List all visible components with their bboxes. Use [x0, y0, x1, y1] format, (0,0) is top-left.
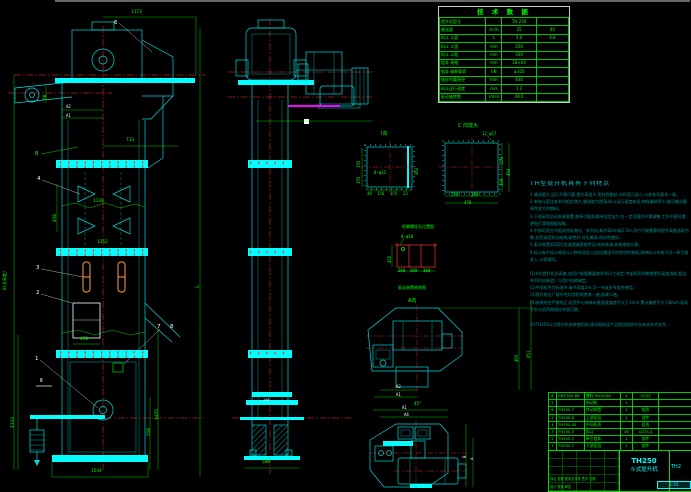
- anchor-200: 200: [398, 269, 405, 273]
- section-c-250: 250: [500, 157, 504, 164]
- balloon-2[interactable]: 2: [36, 291, 40, 297]
- section-i-40: 40: [367, 192, 372, 196]
- boot-view-a4: A4: [404, 413, 409, 417]
- dim-1333: 1333: [12, 417, 17, 428]
- tech-param-value-1: 48.5: [502, 93, 536, 101]
- cad-sheet: { "sheet": {"background": "#000000", "fr…: [0, 0, 691, 491]
- part-note: [659, 421, 691, 428]
- part-code: TH250.6: [557, 414, 585, 421]
- machine-name: 斗式提升机: [619, 468, 669, 474]
- tech-table-row: 输送量 m³/h 25 40: [440, 26, 569, 34]
- tech-param-unit: m/s: [486, 85, 502, 93]
- anchor-holes: 8-φ18: [401, 235, 413, 239]
- tech-param-label: 驱动轴转数: [440, 93, 486, 101]
- part-number: 4: [549, 421, 557, 428]
- balloon-4[interactable]: 4: [37, 177, 41, 183]
- section-i-155a: 155: [357, 161, 361, 168]
- part-name: 传动装置: [585, 407, 621, 414]
- tech-param-value-1: ≥320: [502, 68, 536, 76]
- part-qty: 46: [621, 428, 633, 435]
- part-name: 牵引链条: [585, 436, 621, 443]
- tech-param-label: 输送量: [440, 26, 486, 34]
- section-mark-2: Ⅱ: [40, 379, 43, 385]
- part-material: Q235-A: [633, 428, 659, 435]
- tech-table-row: 链轮节圆直径 mm 630: [440, 76, 569, 84]
- part-name: 电动机: [585, 400, 621, 407]
- title-block: 标记 处数 更改文件号 签字 日期 设计 校核 审定 TH250 斗式提升机 1…: [548, 450, 691, 492]
- parts-list-row: 8 GB5782-86 螺栓 M20×80 4 Q235: [549, 393, 691, 400]
- section-i-155b: 155: [357, 177, 361, 184]
- tech-param-value-1: 25: [502, 26, 536, 34]
- tech-param-value-1: 350: [502, 51, 536, 59]
- remark-line: (1)H为提升机总高度,由用户根据需要按系列尺寸选定,中部机壳节数按提升高度选取…: [530, 270, 690, 284]
- tech-param-value-2: [536, 43, 568, 51]
- anchor-detail-title: 地脚螺栓孔位置图: [402, 225, 434, 229]
- title-block-right: TH2: [669, 451, 691, 491]
- tech-param-value-2: [536, 18, 568, 26]
- tech-table-row: 料斗运行速度 m/s 1.2: [440, 85, 569, 93]
- part-qty: 1: [621, 400, 633, 407]
- tech-param-unit: L: [486, 34, 502, 42]
- part-note: [659, 407, 691, 414]
- section-i-title: Ⅰ向: [381, 132, 387, 137]
- dim-713: 713: [126, 139, 134, 144]
- part-name: 上部区段: [585, 414, 621, 421]
- machine-model: TH250: [619, 458, 669, 465]
- part-material: 部件: [633, 414, 659, 421]
- parts-list-row: 1 TH250.1 下部区段 1 部件: [549, 443, 691, 450]
- tech-param-value-1: TH 250: [502, 18, 536, 26]
- top-view-465: 465: [515, 355, 519, 362]
- tech-table-row: 驱动轴转数 r/min 48.5: [440, 93, 569, 101]
- parts-list-row: 3 TH250.3 料斗 46 Q235-A: [549, 428, 691, 435]
- tech-table-row: 料斗 斗容 L 3.0 4.8: [440, 34, 569, 42]
- part-note: [659, 400, 691, 407]
- tech-table-row: 提升机型号 TH 250: [440, 18, 569, 26]
- dim-boot-500: 500: [262, 461, 270, 466]
- dim-H-label: H(总高度): [3, 271, 7, 290]
- part-note: [659, 436, 691, 443]
- tech-param-label: 料斗运行速度: [440, 85, 486, 93]
- remark-line: (2)中间机壳为标准节,每节高度2m,可一节或多节组合使用。: [530, 284, 690, 291]
- anchor-435: 435: [388, 256, 392, 263]
- part-material: 部件: [633, 436, 659, 443]
- remark-line: (4)安装时应严格找正,机壳中心线每米垂直度偏差不大于1mm,累计偏差不大于8m…: [530, 299, 690, 313]
- dim-door-450: 450: [80, 338, 88, 343]
- feature-notes: TH型提升机具有下列特点 1.输送量大,运行平稳可靠,提升高度大,密封性能好,对…: [530, 181, 690, 391]
- top-view-a2: A2: [396, 385, 401, 389]
- feature-note-line: 3.下部采用自动张紧装置,使牵引链条保持恒定张力,在一定范围内不需调整,工作平稳…: [530, 213, 690, 227]
- part-note: [659, 443, 691, 450]
- dim-base-width: 1544: [91, 470, 102, 475]
- section-c-478: 478: [464, 201, 471, 205]
- remark-line: (3)提升机出厂前外壳均涂防锈底漆一遍,面漆二遍。: [530, 291, 690, 298]
- boot-view-B: B: [463, 456, 467, 458]
- technical-data-table: 技 术 数 据 提升机型号 TH 250 输送量 m³/h 25 40: [438, 6, 570, 103]
- part-qty: 1: [621, 407, 633, 414]
- part-qty: 1: [621, 414, 633, 421]
- parts-list-row: 6 TH250.7 传动装置 1 组合: [549, 407, 691, 414]
- tech-param-value-2: [536, 93, 568, 101]
- section-c-holes: 12-φ17: [482, 132, 496, 136]
- tech-param-value-1: 250: [502, 43, 536, 51]
- section-i-156: 156: [377, 192, 384, 196]
- drawing-number: TH2: [671, 465, 691, 470]
- part-code: TH250.7: [557, 407, 585, 414]
- tech-param-label: 提升机型号: [440, 18, 486, 26]
- tech-param-value-2: [536, 68, 568, 76]
- section-c-b300: 300: [471, 193, 478, 197]
- part-note: [659, 428, 691, 435]
- feature-notes-title: TH型提升机具有下列特点: [530, 181, 690, 187]
- balloon-8[interactable]: 8: [170, 325, 174, 331]
- section-c-b250: 250: [451, 193, 458, 197]
- part-name: 下部区段: [585, 443, 621, 450]
- balloon-1[interactable]: 1: [35, 357, 39, 363]
- part-qty: 4: [621, 393, 633, 400]
- part-number: 1: [549, 443, 557, 450]
- revision-grid: 标记 处数 更改文件号 签字 日期 设计 校核 审定: [549, 451, 620, 491]
- section-i-155c: 155: [390, 192, 397, 196]
- part-number: 5: [549, 414, 557, 421]
- part-material: 组合: [633, 421, 659, 428]
- tech-table-row: 料斗 斗距 mm 350: [440, 51, 569, 59]
- tech-param-unit: mm: [486, 76, 502, 84]
- part-material: Q235: [633, 393, 659, 400]
- top-view-a1: A1: [396, 393, 401, 397]
- parts-list-row: 7 电动机 1: [549, 400, 691, 407]
- part-code: TH250.45: [557, 421, 585, 428]
- tech-param-value-2: 40: [536, 26, 568, 34]
- part-qty: 1: [621, 443, 633, 450]
- tech-param-unit: r/min: [486, 93, 502, 101]
- parts-list-row: 2 TH250.2 牵引链条 2 部件: [549, 436, 691, 443]
- part-qty: [621, 421, 633, 428]
- section-c-300: 300: [500, 179, 504, 186]
- tech-param-label: 链条 破断载荷: [440, 68, 486, 76]
- dim-550: 550: [148, 428, 153, 436]
- section-i-360: 360: [415, 168, 419, 175]
- feature-note-line: 4.中部机壳分节组成并标准化、系列化,每节高2m或2.5m,用户可按需要的提升高…: [530, 227, 690, 241]
- part-code: TH250.1: [557, 443, 585, 450]
- balloon-3[interactable]: 3: [36, 266, 40, 272]
- tech-param-value-2: [536, 59, 568, 67]
- tech-param-unit: [486, 18, 502, 26]
- tech-param-value-2: [536, 85, 568, 93]
- top-view-mark-a: A向: [408, 299, 416, 304]
- technical-data-title: 技 术 数 据: [439, 7, 569, 17]
- view-mark-b: B: [35, 152, 38, 157]
- tech-param-value-1: 3.0: [502, 34, 536, 42]
- tech-param-unit: mm: [486, 51, 502, 59]
- tech-table-row: 料斗 斗宽 mm 250: [440, 43, 569, 51]
- part-code: GB5782-86: [557, 393, 585, 400]
- feature-note-line: 5.驱动装置采用ZQ型减速器直联传动,结构紧凑,安装维修方便。: [530, 241, 690, 248]
- section-i-holes: 8-φ12: [374, 171, 386, 175]
- part-code: TH250.2: [557, 436, 585, 443]
- tech-param-unit: kN: [486, 68, 502, 76]
- dim-a1: A1: [66, 114, 71, 118]
- tech-param-unit: mm: [486, 43, 502, 51]
- part-number: 3: [549, 428, 557, 435]
- tech-param-unit: mm: [486, 59, 502, 67]
- dim-head-width: 1173: [131, 11, 142, 16]
- part-note: [659, 393, 691, 400]
- tech-param-value-1: 1.2: [502, 85, 536, 93]
- boot-view-a: a: [470, 458, 474, 460]
- tech-param-value-2: [536, 51, 568, 59]
- balloon-7[interactable]: 7: [157, 325, 161, 331]
- feature-note-line: 1.输送量大,运行平稳可靠,提升高度大,密封性能好,对环境污染小,与老系列基本一…: [530, 191, 690, 198]
- boot-view-a1: A1: [402, 406, 407, 410]
- dim-a2: A2: [66, 105, 71, 109]
- parts-list-row: 4 TH250.45 中间机壳 组合: [549, 421, 691, 428]
- dim-50: 50: [44, 95, 49, 100]
- parts-list-row: 5 TH250.6 上部区段 1 部件: [549, 414, 691, 421]
- part-number: 2: [549, 436, 557, 443]
- dim-total-height-L: L: [196, 285, 202, 288]
- top-view-title: 驱动装置俯视图: [398, 286, 426, 290]
- section-c-title: C 向放大: [458, 124, 478, 129]
- section-i-22: 22: [403, 192, 408, 196]
- part-name: 料斗: [585, 428, 621, 435]
- part-number: 7: [549, 400, 557, 407]
- parts-list: 8 GB5782-86 螺栓 M20×80 4 Q235 7 电动机 1: [548, 392, 691, 458]
- tech-param-value-1: 18×64: [502, 59, 536, 67]
- part-qty: 2: [621, 436, 633, 443]
- feature-note-line: 2.有效斗容比老系列相应增大,输送能力提高,料斗运行速度较低,物料破碎率小,故可…: [530, 198, 690, 212]
- anchor-300b: 300: [423, 269, 430, 273]
- part-number: 8: [549, 393, 557, 400]
- dim-1130: 1130: [93, 200, 104, 205]
- tech-param-label: 链条 规格: [440, 59, 486, 67]
- part-material: 组合: [633, 407, 659, 414]
- part-code: TH250.3: [557, 428, 585, 435]
- part-material: 部件: [633, 443, 659, 450]
- dim-140: 140: [263, 399, 269, 403]
- part-number: 6: [549, 407, 557, 414]
- tech-param-unit: m³/h: [486, 26, 502, 34]
- balloon-6[interactable]: 6: [114, 21, 118, 27]
- dim-1352: 1352: [97, 241, 108, 246]
- tech-param-value-1: 630: [502, 76, 536, 84]
- dim-1425: 1425: [156, 409, 161, 420]
- boot-view-45deg: 45°: [414, 402, 421, 406]
- tech-param-label: 料斗 斗距: [440, 51, 486, 59]
- part-name: 中间机壳: [585, 421, 621, 428]
- part-name: 螺栓 M20×80: [585, 393, 621, 400]
- section-c-450: 450: [507, 169, 511, 176]
- footnote-line: (5)TH250斗式提升机安装使用前,请详细阅读产品使用说明书及有关技术文件。: [530, 321, 690, 328]
- part-note: [659, 414, 691, 421]
- tech-param-label: 链轮节圆直径: [440, 76, 486, 84]
- tech-table-row: 链条 规格 mm 18×64: [440, 59, 569, 67]
- staff-row: 设计 校核 审定: [550, 484, 571, 489]
- part-material: [633, 400, 659, 407]
- tech-table-row: 链条 破断载荷 kN ≥320: [440, 68, 569, 76]
- feature-note-line: 6.料斗有中深斗和深斗二种供选用,以适应输送不同性质的物料,两种料斗均装于同一牵…: [530, 249, 690, 263]
- anchor-300a: 300: [410, 269, 417, 273]
- part-code: [557, 400, 585, 407]
- tech-param-value-2: [536, 76, 568, 84]
- tech-param-label: 料斗 斗容: [440, 34, 486, 42]
- dim-450-mid: 450: [54, 214, 59, 222]
- revision-header: 标记 处数 更改文件号 签字 日期: [550, 476, 596, 481]
- tech-param-value-2: 4.8: [536, 34, 568, 42]
- tech-param-label: 料斗 斗宽: [440, 43, 486, 51]
